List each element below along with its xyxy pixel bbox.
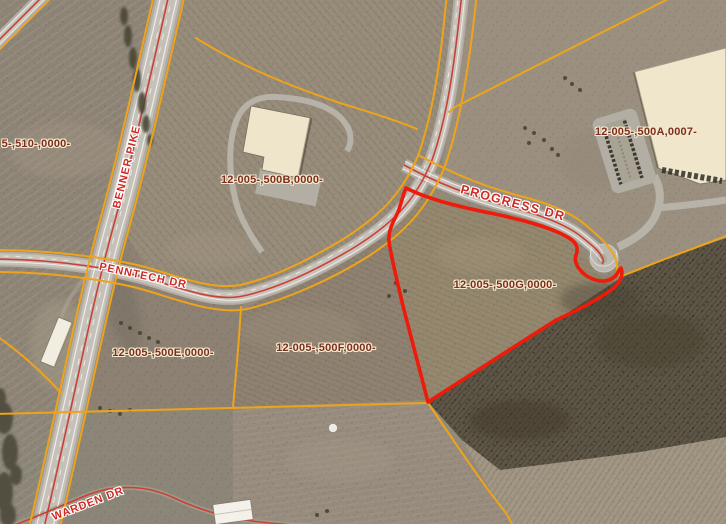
small-outbuilding xyxy=(329,424,338,433)
aerial-imagery-layer xyxy=(0,0,726,524)
map-viewport[interactable]: BENNER PIKE PENNTECH DR PROGRESS DR WARD… xyxy=(0,0,726,524)
